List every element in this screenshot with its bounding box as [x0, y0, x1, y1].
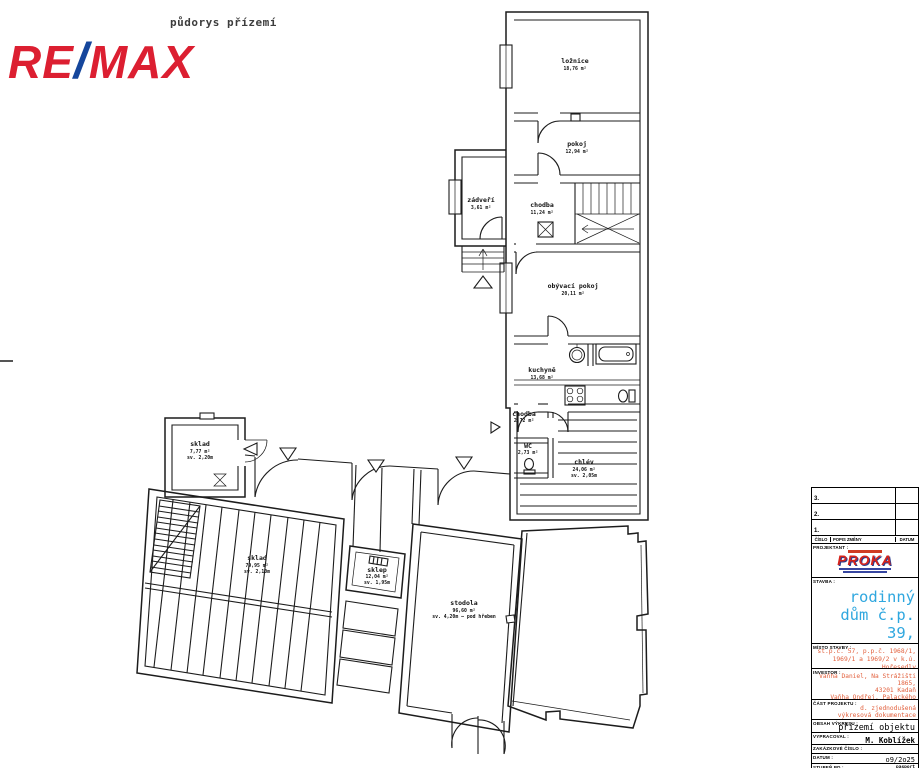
room-label-chlev: chlév	[574, 458, 594, 466]
entry-marker-triangle	[474, 276, 492, 288]
proka-logo-text: PROKA	[812, 554, 918, 567]
revision-date	[895, 488, 918, 503]
zakazkove-cislo-label: ZAKÁZKOVÉ ČÍSLO :	[813, 746, 862, 751]
investor-label: INVESTOR :	[813, 670, 841, 675]
room-label-sklad-velky: sklad	[247, 554, 267, 562]
revision-number: 1.	[814, 528, 819, 534]
obsah-vykresu-row: OBSAH VÝKRESU : přízemí objektu	[812, 720, 918, 733]
cast-projektu-row: ČÁST PROJEKTU : d. zjednodušená výkresov…	[812, 700, 918, 720]
staircase	[575, 183, 640, 244]
bathtub	[596, 344, 636, 364]
room-label-kuchyne: kuchyně	[528, 366, 555, 374]
revision-row: 3.	[812, 488, 918, 504]
courtyard-gate-wall	[245, 448, 510, 505]
room-area: 24,06 m²	[572, 467, 595, 473]
cast-line: d. zjednodušená	[812, 705, 916, 712]
stavba-row: STAVBA : rodinný dům č.p. 39, Hořesedly	[812, 578, 918, 644]
revision-desc: 1.	[812, 520, 895, 535]
stove	[565, 386, 585, 405]
room-label-wc: WC	[524, 442, 532, 450]
investor-line: Vaňha Daniel, Na Strážišti 1865,	[812, 673, 916, 687]
gable-marker	[280, 448, 296, 460]
room-area: 11,24 m²	[530, 210, 553, 216]
vypracoval-row: VYPRACOVAL : M. Koblížek	[812, 733, 918, 745]
room-area: 3,61 m²	[471, 205, 491, 211]
room-height: sv. 2,10m	[244, 569, 270, 575]
vypracoval-label: VYPRACOVAL :	[813, 734, 849, 739]
room-height: sv. 1,95m	[364, 580, 390, 586]
misto-line: 1969/1 a 1969/2 v k.ú. Hořesedly	[812, 656, 916, 669]
room-area: 13,68 m²	[530, 375, 553, 381]
revision-number: 2.	[814, 512, 819, 518]
investor-row: INVESTOR : Vaňha Daniel, Na Strážišti 18…	[812, 669, 918, 700]
door-marker-triangle	[244, 443, 257, 455]
room-height: sv. 4,20m – pod hřeben	[432, 613, 496, 620]
misto-stavby-row: MÍSTO STAVBY : st.p.č. 57, p.p.č. 1968/1…	[812, 644, 918, 669]
yard	[506, 526, 648, 728]
floorplan-sheet: RE/MAX půdorys přízemí	[0, 0, 923, 768]
revision-header-row: ČÍSLO POPIS ZMĚNY DATUM	[812, 536, 918, 544]
header-cislo: ČÍSLO	[812, 537, 830, 542]
room-label-pokoj: pokoj	[567, 140, 587, 148]
revision-desc: 2.	[812, 504, 895, 519]
stodola-double-door	[452, 714, 506, 754]
zakazkove-cislo-row: ZAKÁZKOVÉ ČÍSLO :	[812, 745, 918, 754]
room-label-zadveri: zádveří	[467, 196, 494, 204]
room-area: 79,95 m²	[245, 563, 268, 569]
investor-line: 43201 Kadaň	[812, 687, 916, 694]
room-area: 12,04 m²	[365, 574, 388, 580]
room-label-stodola: stodola	[450, 599, 477, 607]
room-area: 7,77 m²	[190, 449, 210, 455]
datum-label: DATUM :	[813, 755, 833, 760]
gable-marker	[456, 457, 472, 469]
stavba-label: STAVBA :	[813, 579, 835, 584]
room-height: sv. 2,20m	[187, 455, 213, 461]
chimney-symbol	[538, 222, 553, 237]
projektant-row: PROJEKTANT : PROKA	[812, 544, 918, 578]
stavba-line: rodinný	[812, 588, 915, 606]
small-sklad	[165, 413, 267, 497]
zadveri-annex	[449, 150, 506, 288]
room-area: 2,73 m²	[518, 450, 538, 456]
wall-tick	[506, 615, 515, 623]
title-block: 3. 2. 1. ČÍSLO POPIS ZMĚNY DATUM PROJEKT…	[811, 487, 919, 768]
cast-line: výkresová dokumentace	[812, 712, 916, 719]
revision-date	[895, 520, 918, 535]
header-datum: DATUM	[895, 537, 918, 542]
room-area: 20,11 m²	[561, 291, 584, 297]
toilet-kitchen	[619, 390, 636, 402]
stupen-pd-row: STUPEŇ PD : pasport stavby	[812, 764, 918, 768]
kitchen-sink	[570, 344, 585, 363]
room-height: sv. 2,05m	[571, 473, 597, 479]
header-popis: POPIS ZMĚNY	[830, 537, 895, 542]
proka-fineprint-1	[839, 568, 891, 570]
big-sklad	[137, 489, 344, 703]
room-area: 12,94 m²	[565, 149, 588, 155]
obsah-vykresu-label: OBSAH VÝKRESU :	[813, 721, 858, 726]
proka-logo: PROKA	[812, 550, 918, 573]
datum-row: DATUM : o9/2o25	[812, 754, 918, 764]
barn-staircase	[150, 500, 200, 578]
room-label-chodba-2: chodba	[512, 410, 536, 418]
room-label-sklep: sklep	[367, 566, 387, 574]
projektant-label: PROJEKTANT :	[813, 545, 848, 550]
room-labels: ložnice 18,76 m² pokoj 12,94 m² chodba 1…	[187, 57, 598, 620]
revision-desc: 3.	[812, 488, 895, 503]
room-label-sklad-maly: sklad	[190, 440, 210, 448]
room-area: 96,60 m²	[452, 608, 475, 614]
revision-row: 2.	[812, 504, 918, 520]
misto-stavby-label: MÍSTO STAVBY :	[813, 645, 851, 650]
drain-symbol	[214, 474, 226, 486]
proka-fineprint-2	[843, 571, 887, 573]
room-area: 18,76 m²	[563, 66, 586, 72]
room-label-chodba: chodba	[530, 201, 554, 209]
room-label-obyvaci-pokoj: obývací pokoj	[548, 282, 599, 290]
floorplan-drawing: ložnice 18,76 m² pokoj 12,94 m² chodba 1…	[0, 0, 923, 768]
revision-row: 1.	[812, 520, 918, 536]
stavba-line: dům č.p. 39,	[812, 606, 915, 642]
revision-number: 3.	[814, 496, 819, 502]
toilet-wc	[524, 459, 535, 475]
room-area: 2,72 m²	[514, 418, 534, 424]
room-label-loznice: ložnice	[561, 57, 588, 65]
cast-projektu-label: ČÁST PROJEKTU :	[813, 701, 857, 706]
revision-date	[895, 504, 918, 519]
entrance-arrow	[491, 422, 500, 433]
